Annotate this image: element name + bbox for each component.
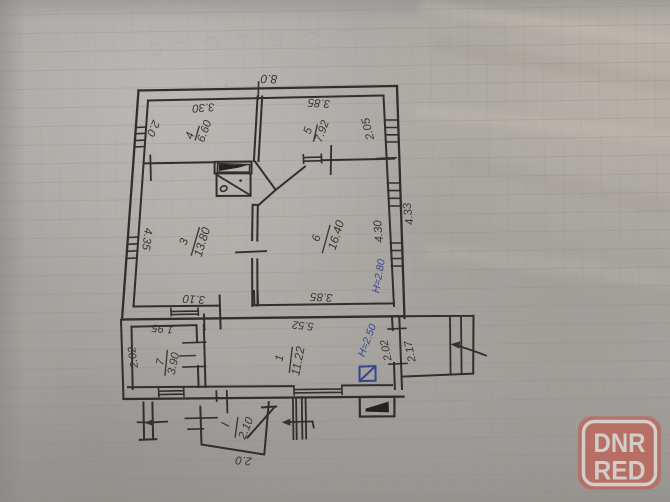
svg-text:DNR: DNR xyxy=(594,428,646,458)
svg-text:4.30: 4.30 xyxy=(372,219,386,243)
svg-text:3.10: 3.10 xyxy=(182,292,206,305)
svg-text:3.30: 3.30 xyxy=(191,100,215,114)
svg-text:RED: RED xyxy=(594,456,646,486)
svg-text:3.85: 3.85 xyxy=(309,290,333,303)
svg-text:1.95: 1.95 xyxy=(150,321,173,335)
svg-text:3.85: 3.85 xyxy=(307,96,331,110)
svg-text:5.52: 5.52 xyxy=(292,318,314,332)
svg-text:2.0: 2.0 xyxy=(235,453,254,466)
svg-text:8.0: 8.0 xyxy=(260,72,277,87)
